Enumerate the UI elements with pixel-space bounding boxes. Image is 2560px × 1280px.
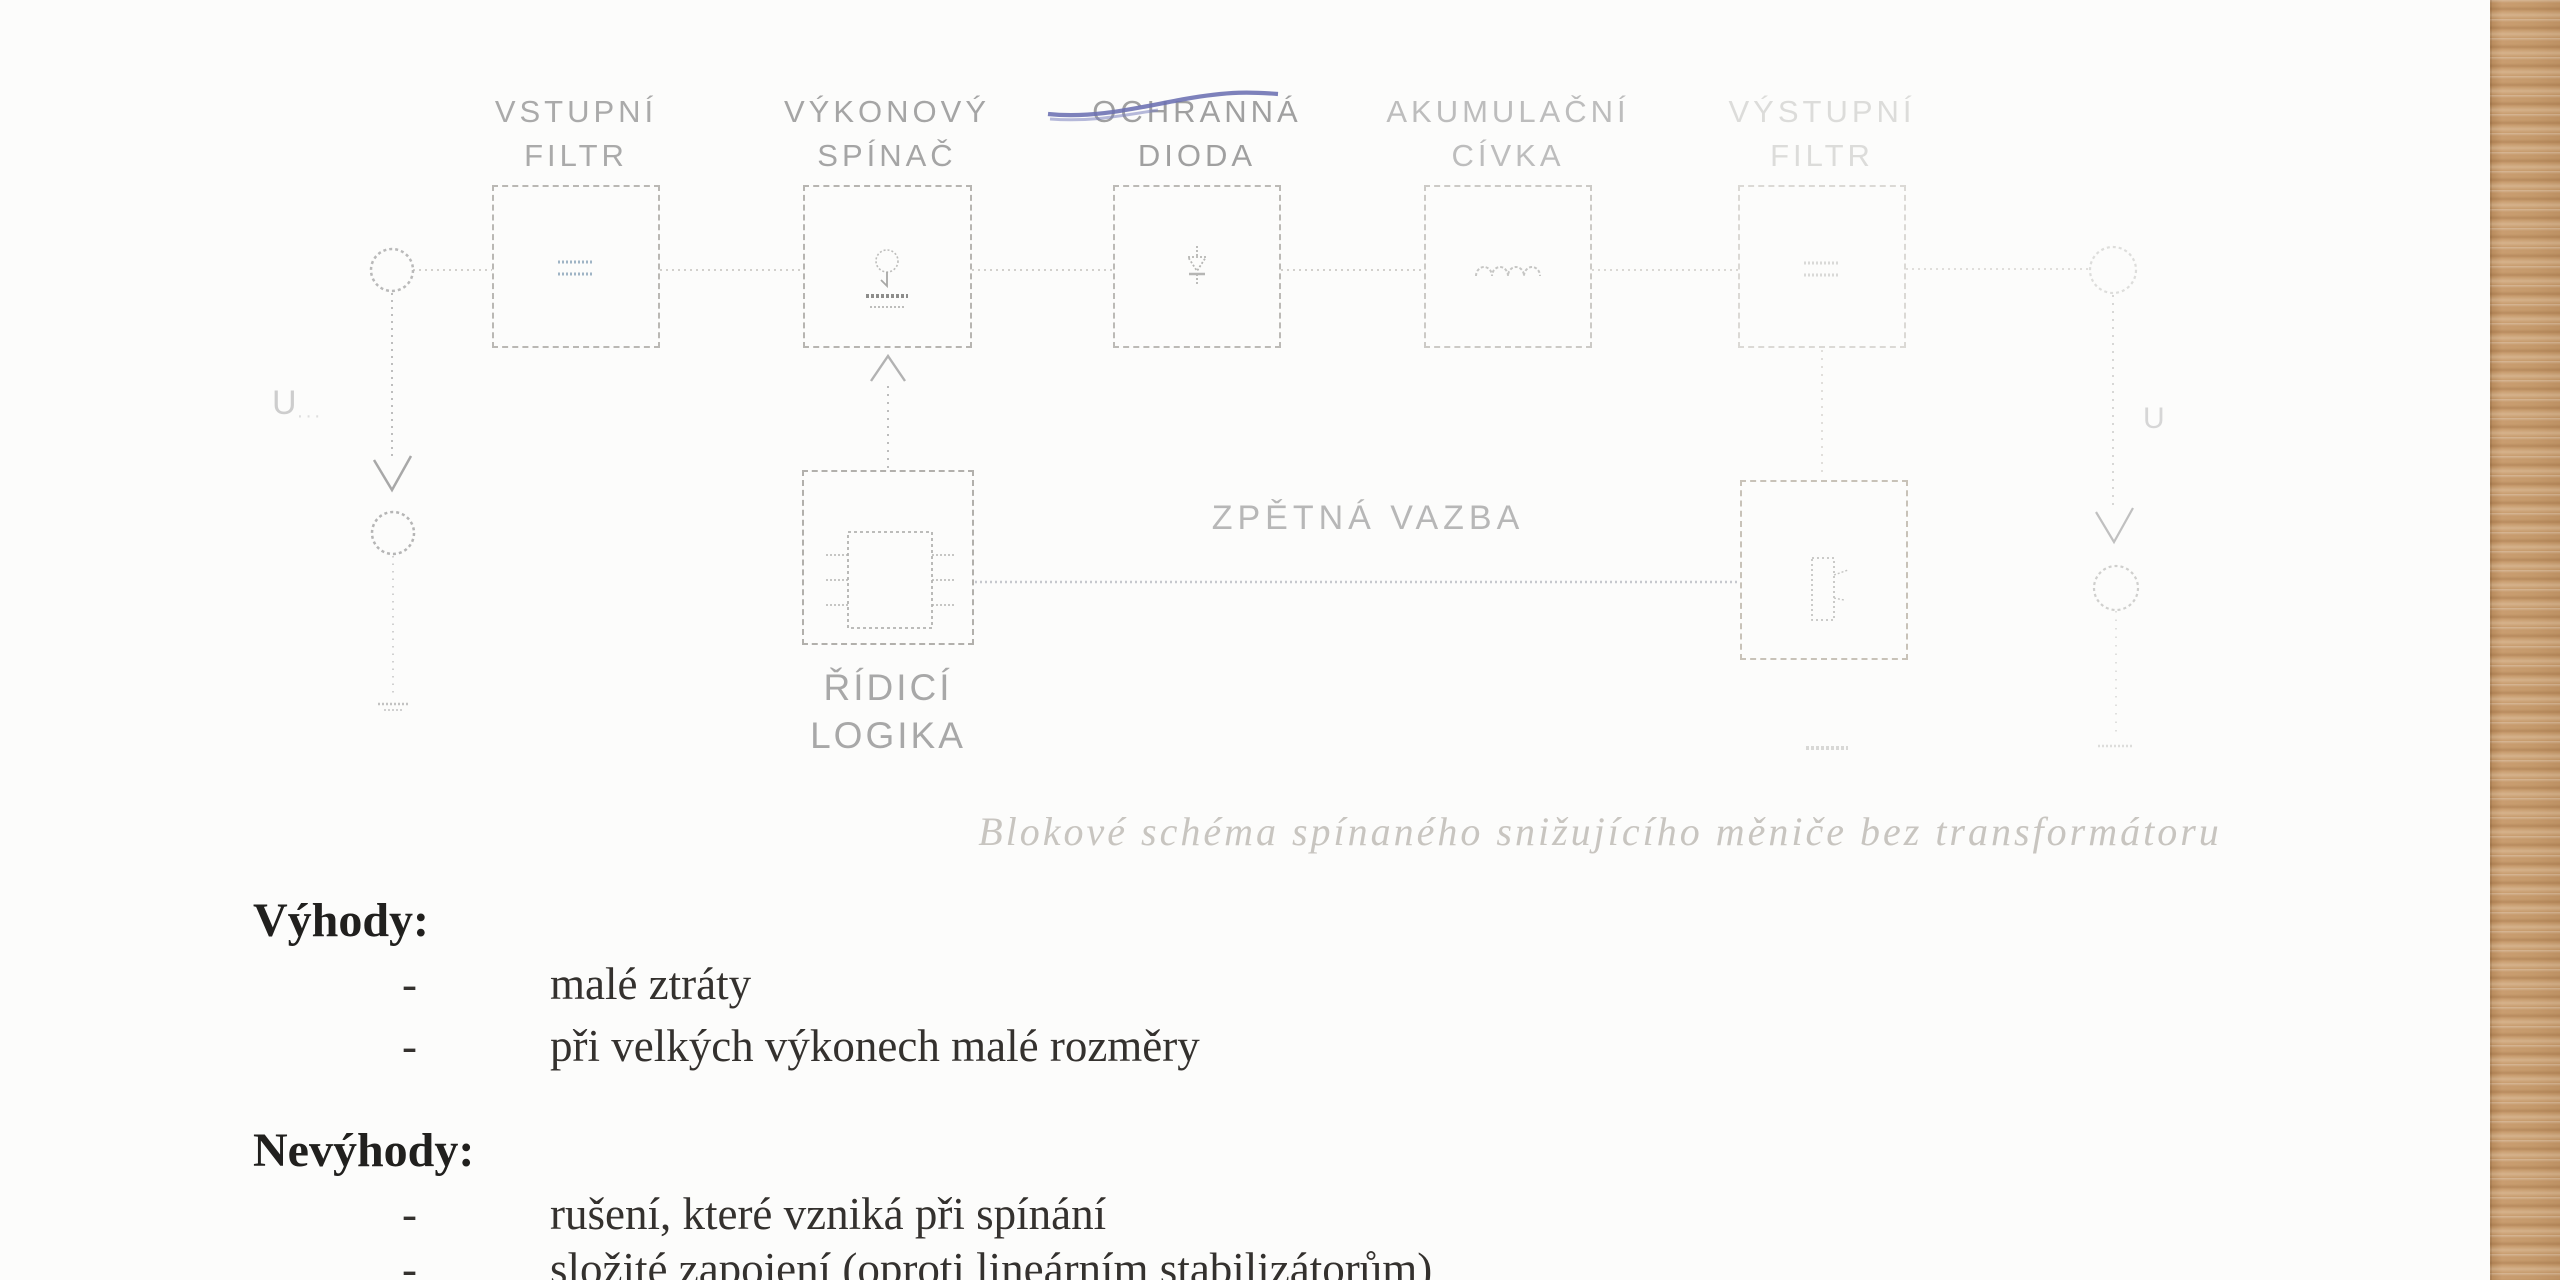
list-item-text: složité zapojení (oproti lineárním stabi… [550,1243,1432,1280]
capacitor-icon [558,262,594,274]
list-item-text: rušení, které vzniká při spínání [550,1188,1106,1240]
list-item: - při velkých výkonech malé rozměry [0,1020,2000,1080]
wire-horizontal [413,269,2090,270]
diagram-linework [0,0,2560,1280]
transistor-icon [866,250,908,307]
output-lower-terminal-icon [2094,566,2138,746]
ground-mark-icon [378,704,409,710]
list-item: - složité zapojení (oproti lineárním sta… [0,1243,2000,1280]
control-drive-arrow-icon [871,356,905,468]
inductor-icon [1476,267,1540,276]
input-lower-terminal-icon [372,512,414,698]
list-item-text: při velkých výkonech malé rozměry [550,1020,1200,1072]
diode-icon [1188,246,1206,286]
output-voltage-arrow-icon [2096,295,2133,542]
bullet-dash: - [402,958,417,1010]
list-item: - rušení, které vzniká při spínání [0,1188,2000,1248]
input-terminal-icon [371,249,413,291]
advantages-heading: Výhody: [253,893,429,948]
scanned-document-page: VSTUPNÍ FILTR VÝKONOVÝ SPÍNAČ OCHRANNÁ D… [0,0,2560,1280]
pen-strikethrough [1048,93,1278,120]
disadvantages-heading: Nevýhody: [253,1123,474,1178]
output-terminal-icon [2090,247,2136,293]
input-voltage-arrow-icon [374,293,411,490]
capacitor-icon [1804,263,1840,275]
bullet-dash: - [402,1243,417,1280]
bullet-dash: - [402,1020,417,1072]
ic-chip-icon [826,532,954,628]
figure-caption: Blokové schéma spínaného snižujícího měn… [940,808,2260,855]
wood-desk-background [2490,0,2560,1280]
list-item: - malé ztráty [0,958,2000,1018]
bullet-dash: - [402,1188,417,1240]
list-item-text: malé ztráty [550,958,751,1010]
sensor-resistor-icon [1812,558,1848,620]
